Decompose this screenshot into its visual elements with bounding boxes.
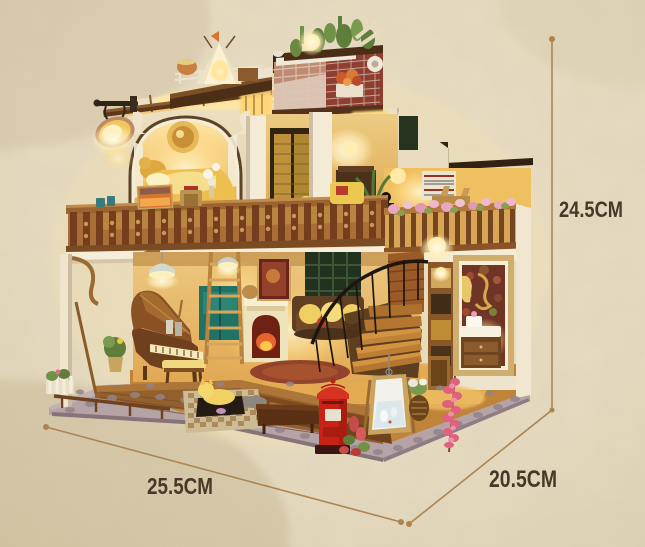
svg-text:25.5CM: 25.5CM: [147, 473, 213, 499]
svg-text:20.5CM: 20.5CM: [489, 466, 557, 493]
svg-text:24.5CM: 24.5CM: [559, 197, 623, 222]
